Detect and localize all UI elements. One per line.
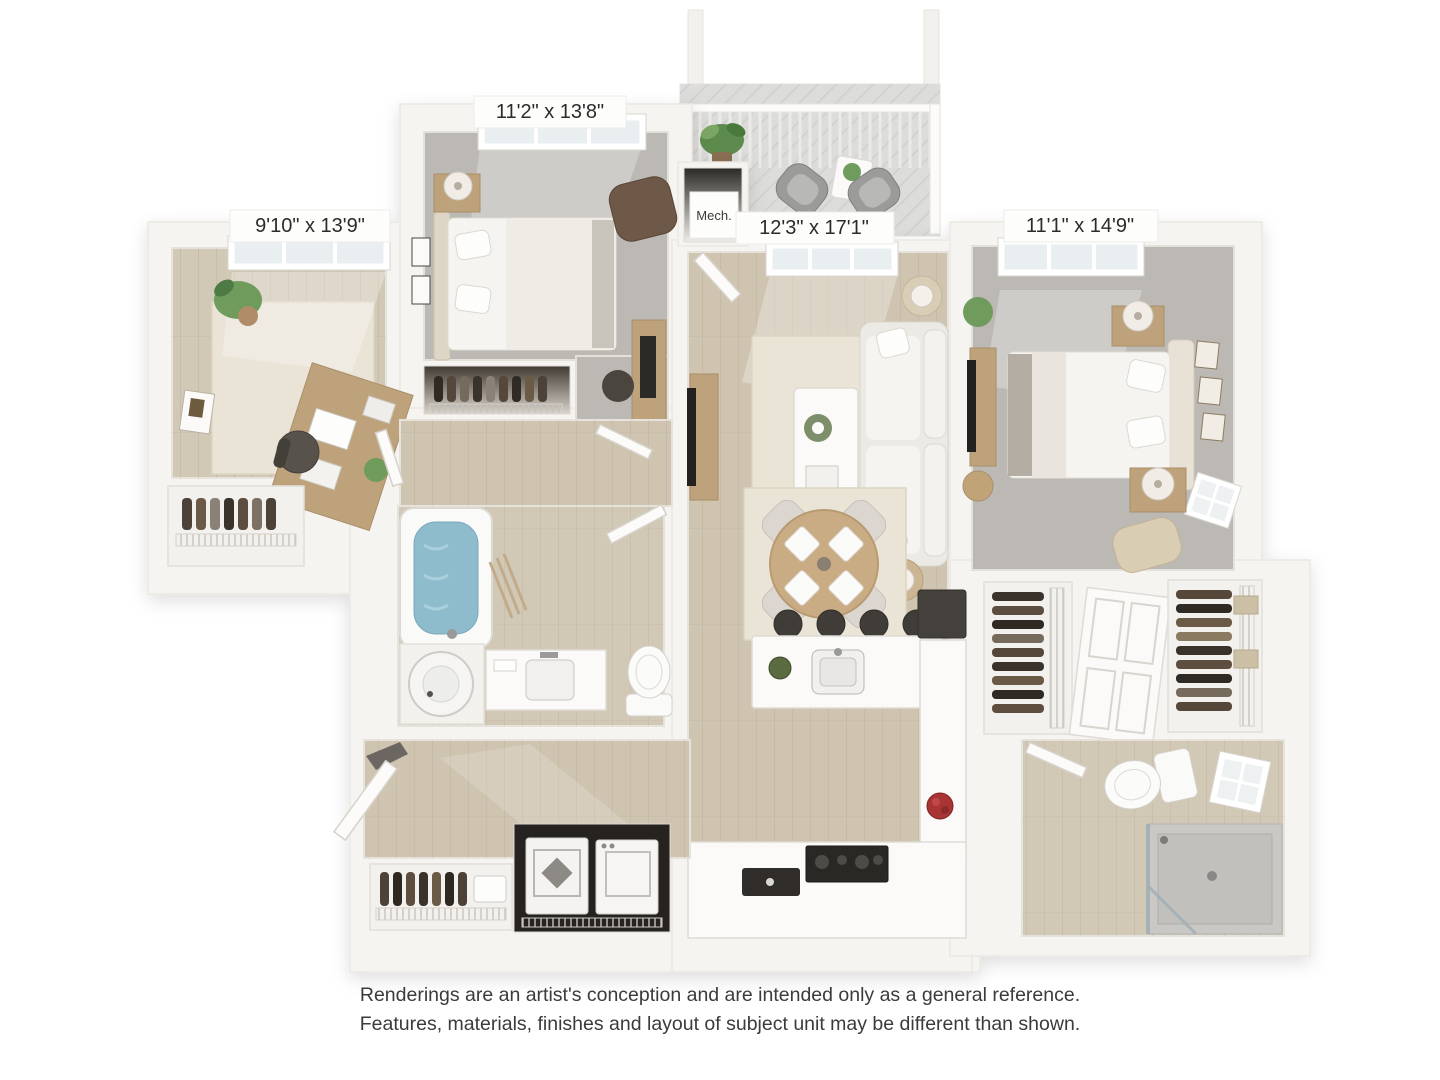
tv — [687, 388, 696, 486]
wire-shelf — [430, 404, 562, 413]
disclaimer-line-2: Features, materials, finishes and layout… — [360, 1013, 1080, 1035]
window — [1209, 751, 1271, 813]
railing-post — [924, 10, 939, 90]
pillow — [454, 229, 492, 261]
fruit-bowl — [927, 793, 953, 819]
dryer — [596, 840, 658, 914]
hanging-clothes — [992, 592, 1044, 713]
table-lamp — [911, 285, 933, 307]
tub-faucet — [447, 629, 457, 639]
book — [806, 466, 838, 488]
office-closet — [168, 486, 304, 566]
mechanical-closet: Mech. — [684, 168, 742, 242]
closet-left — [984, 582, 1072, 734]
shower-drain — [1207, 871, 1217, 881]
entry-area — [334, 740, 690, 932]
wire-shelf — [176, 534, 296, 546]
wire-shelf — [376, 908, 506, 920]
tv-console — [967, 348, 996, 466]
hanging-clothes — [182, 498, 276, 530]
counter-right — [920, 640, 966, 862]
pillow — [454, 284, 491, 314]
window — [998, 238, 1144, 276]
storage-box — [474, 876, 506, 902]
hanging-clothes — [380, 872, 467, 906]
washer — [526, 838, 588, 914]
closet-right — [1168, 580, 1262, 732]
stove — [806, 846, 888, 882]
shower-head — [1160, 836, 1168, 844]
coffee-table — [794, 388, 858, 504]
hanging-clothes — [1176, 590, 1232, 711]
throw-blanket — [592, 220, 614, 348]
potted-plant — [963, 297, 993, 327]
desk-chair — [602, 370, 634, 402]
wire-shelf — [1050, 588, 1064, 728]
bar-stool — [817, 610, 845, 638]
hanging-clothes — [434, 376, 547, 402]
faucet — [540, 652, 558, 658]
nightstand — [1130, 468, 1186, 512]
vanity-sink — [526, 660, 574, 700]
towel — [494, 660, 516, 671]
island-sink — [812, 648, 864, 694]
pillow — [1126, 415, 1166, 449]
nightstand — [1112, 301, 1164, 346]
fruit-plate — [769, 657, 791, 679]
laundry-closet — [514, 824, 670, 932]
bed — [434, 212, 616, 360]
disclaimer: Renderings are an artist's conception an… — [360, 984, 1080, 1035]
bedroom-1-dimension-label: 11'1" x 14'9" — [1026, 215, 1134, 237]
bathroom-1 — [398, 505, 672, 726]
wall-art — [179, 390, 214, 434]
coat-closet — [370, 864, 512, 930]
vanity — [486, 650, 606, 710]
bar-stool — [774, 610, 802, 638]
throw-blanket — [1008, 354, 1032, 476]
bedroom-2-closet — [424, 366, 570, 414]
bathtub — [400, 508, 492, 648]
monitor — [640, 336, 656, 398]
storage-box — [1234, 596, 1258, 614]
water-heater — [400, 644, 484, 724]
walk-in-closets — [984, 580, 1262, 745]
floor-plan-page: Mech. — [0, 0, 1440, 1080]
nightstand — [434, 172, 480, 212]
tv-console — [687, 374, 718, 500]
mech-label: Mech. — [696, 208, 731, 223]
living-dimension-label: 12'3" x 17'1" — [759, 217, 869, 239]
tv — [967, 360, 976, 452]
bedroom-1 — [963, 238, 1242, 576]
french-door-window — [766, 242, 898, 276]
tub-water — [414, 522, 478, 634]
shower — [1148, 824, 1282, 934]
toilet — [626, 646, 672, 716]
faucet — [834, 648, 842, 656]
wire-shelf — [522, 918, 662, 927]
office-dimension-label: 9'10" x 13'9" — [255, 215, 365, 237]
side-table — [963, 471, 993, 501]
refrigerator — [918, 590, 966, 638]
bedroom-2-dimension-label: 11'2" x 13'8" — [496, 101, 604, 123]
disclaimer-line-1: Renderings are an artist's conception an… — [360, 984, 1080, 1006]
bar-stool — [860, 610, 888, 638]
closet-door-panel — [1069, 587, 1170, 744]
side-table — [902, 276, 942, 316]
hallway — [376, 420, 672, 506]
centerpiece — [817, 557, 831, 571]
storage-box — [1234, 650, 1258, 668]
bathroom-2 — [1022, 740, 1284, 936]
floor-plan-canvas: Mech. — [0, 0, 1440, 1080]
railing-post — [688, 10, 703, 90]
